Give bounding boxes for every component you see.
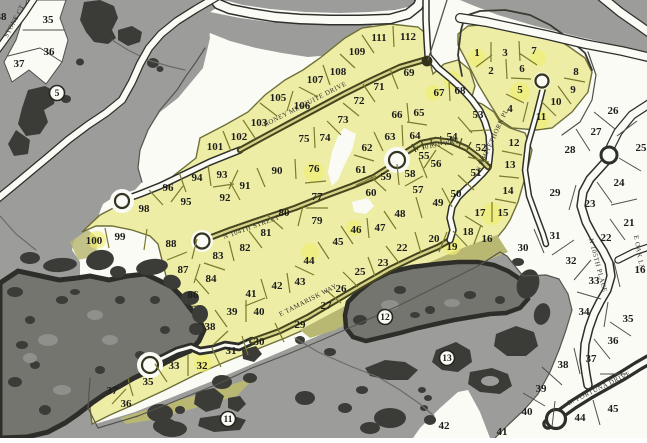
svg-text:42: 42 [272, 280, 284, 292]
svg-text:84: 84 [206, 273, 218, 285]
svg-text:80: 80 [279, 207, 291, 219]
svg-text:102: 102 [231, 131, 248, 143]
svg-text:14: 14 [503, 185, 515, 197]
svg-text:56: 56 [431, 158, 443, 170]
svg-text:23: 23 [585, 198, 597, 210]
svg-text:25: 25 [636, 142, 647, 154]
svg-text:13: 13 [442, 354, 452, 364]
svg-text:36: 36 [121, 398, 133, 410]
svg-text:16: 16 [482, 233, 494, 245]
svg-text:40: 40 [254, 306, 266, 318]
svg-text:66: 66 [392, 109, 404, 121]
svg-text:13: 13 [505, 159, 517, 171]
svg-text:35: 35 [43, 14, 55, 26]
svg-text:101: 101 [207, 141, 224, 153]
svg-text:27: 27 [321, 300, 333, 312]
svg-text:12: 12 [380, 313, 390, 323]
svg-text:17: 17 [475, 207, 487, 219]
svg-text:53: 53 [473, 109, 485, 121]
svg-text:91: 91 [240, 180, 251, 192]
svg-text:29: 29 [295, 319, 307, 331]
svg-text:57: 57 [413, 184, 425, 196]
svg-text:18: 18 [463, 226, 475, 238]
svg-text:68: 68 [455, 85, 467, 97]
svg-text:3: 3 [502, 47, 508, 59]
svg-text:11: 11 [536, 111, 546, 123]
svg-text:42: 42 [439, 420, 451, 432]
svg-text:20: 20 [429, 233, 441, 245]
svg-text:43: 43 [295, 276, 307, 288]
svg-text:36: 36 [44, 46, 56, 58]
svg-text:69: 69 [404, 67, 416, 79]
svg-text:83: 83 [213, 250, 225, 262]
svg-text:74: 74 [320, 132, 332, 144]
svg-text:50: 50 [451, 188, 463, 200]
svg-text:28: 28 [565, 144, 577, 156]
svg-text:90: 90 [272, 165, 284, 177]
svg-text:93: 93 [217, 169, 229, 181]
svg-text:37: 37 [107, 385, 119, 397]
svg-text:96: 96 [163, 182, 175, 194]
svg-text:82: 82 [240, 242, 252, 254]
svg-text:58: 58 [405, 168, 417, 180]
svg-text:75: 75 [299, 133, 311, 145]
svg-text:32: 32 [566, 255, 578, 267]
svg-text:27: 27 [591, 126, 603, 138]
svg-text:7: 7 [531, 45, 537, 57]
svg-text:39: 39 [536, 383, 548, 395]
svg-text:22: 22 [397, 242, 409, 254]
svg-text:1: 1 [474, 47, 480, 59]
svg-text:37: 37 [14, 58, 26, 70]
svg-text:44: 44 [575, 412, 587, 424]
svg-text:105: 105 [270, 92, 287, 104]
svg-text:21: 21 [624, 217, 635, 229]
svg-text:61: 61 [356, 164, 367, 176]
svg-text:76: 76 [309, 163, 321, 175]
svg-text:81: 81 [261, 227, 272, 239]
svg-text:29: 29 [550, 187, 562, 199]
svg-text:19: 19 [447, 241, 459, 253]
svg-text:64: 64 [410, 130, 422, 142]
svg-text:26: 26 [608, 105, 620, 117]
svg-text:62: 62 [362, 142, 374, 154]
svg-text:22: 22 [601, 232, 613, 244]
svg-text:63: 63 [385, 131, 397, 143]
svg-text:31: 31 [226, 345, 237, 357]
svg-text:35: 35 [623, 313, 635, 325]
svg-text:32: 32 [197, 360, 209, 372]
svg-text:112: 112 [400, 31, 416, 43]
svg-text:41: 41 [497, 426, 508, 438]
svg-text:6: 6 [519, 63, 525, 75]
svg-text:48: 48 [395, 208, 407, 220]
svg-text:11: 11 [224, 415, 233, 425]
svg-text:59: 59 [381, 171, 393, 183]
svg-text:5: 5 [517, 84, 523, 96]
svg-text:44: 44 [304, 255, 316, 267]
svg-text:79: 79 [312, 215, 324, 227]
svg-text:25: 25 [355, 266, 367, 278]
svg-text:87: 87 [178, 264, 190, 276]
svg-text:36: 36 [608, 335, 620, 347]
svg-text:39: 39 [227, 306, 239, 318]
svg-text:107: 107 [307, 74, 324, 86]
svg-text:86: 86 [188, 289, 200, 301]
svg-text:92: 92 [220, 192, 232, 204]
svg-text:47: 47 [375, 222, 387, 234]
svg-text:38: 38 [558, 359, 570, 371]
svg-text:88: 88 [166, 238, 178, 250]
svg-text:111: 111 [371, 32, 386, 44]
svg-text:15: 15 [498, 207, 510, 219]
svg-text:38: 38 [0, 11, 7, 23]
svg-text:37: 37 [586, 353, 598, 365]
svg-text:24: 24 [614, 177, 626, 189]
svg-text:5: 5 [55, 89, 60, 99]
svg-text:23: 23 [378, 257, 390, 269]
svg-text:9: 9 [570, 84, 576, 96]
svg-text:38: 38 [205, 321, 217, 333]
svg-text:77: 77 [312, 191, 324, 203]
svg-text:45: 45 [333, 236, 345, 248]
svg-text:12: 12 [509, 137, 521, 149]
svg-text:35: 35 [143, 376, 155, 388]
svg-text:67: 67 [434, 87, 446, 99]
svg-text:65: 65 [414, 107, 426, 119]
svg-text:49: 49 [433, 197, 445, 209]
svg-text:31: 31 [550, 230, 561, 242]
svg-text:8: 8 [573, 66, 579, 78]
svg-text:109: 109 [349, 46, 366, 58]
svg-text:45: 45 [608, 403, 620, 415]
svg-text:41: 41 [246, 288, 257, 300]
svg-text:94: 94 [192, 172, 204, 184]
svg-text:108: 108 [330, 66, 347, 78]
svg-text:34: 34 [579, 306, 591, 318]
svg-text:95: 95 [181, 196, 193, 208]
svg-text:72: 72 [354, 95, 366, 107]
svg-text:30: 30 [254, 336, 266, 348]
svg-text:60: 60 [366, 187, 378, 199]
svg-text:46: 46 [351, 224, 363, 236]
svg-text:30: 30 [518, 242, 530, 254]
svg-text:100: 100 [86, 235, 103, 247]
svg-text:99: 99 [115, 231, 127, 243]
svg-text:10: 10 [551, 96, 563, 108]
svg-text:33: 33 [169, 360, 181, 372]
svg-text:71: 71 [374, 81, 385, 93]
svg-text:73: 73 [338, 114, 350, 126]
svg-text:98: 98 [139, 203, 151, 215]
svg-text:2: 2 [488, 65, 494, 77]
svg-text:40: 40 [522, 406, 534, 418]
